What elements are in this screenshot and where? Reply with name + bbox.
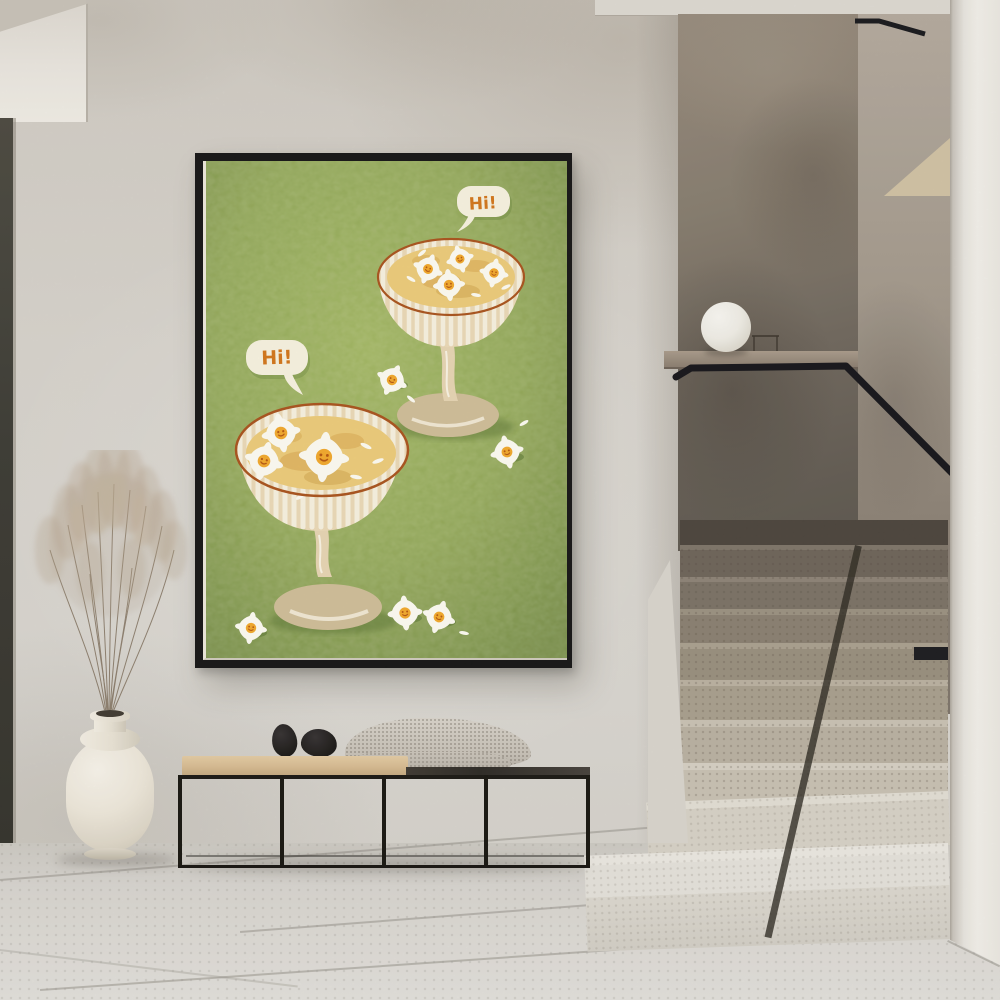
- foreground-wall-column: [950, 0, 1000, 965]
- bench: [178, 716, 592, 868]
- upper-handrail: [855, 21, 925, 34]
- bench-frame-bottom-rail: [178, 865, 590, 868]
- bench-leg: [382, 775, 386, 868]
- handrail-svg: [640, 0, 960, 700]
- pampas-grass: [20, 450, 220, 720]
- poster-frame: Hi! Hi!: [195, 153, 572, 668]
- bubble-text-right: Hi!: [468, 193, 497, 214]
- vase-mouth: [96, 710, 124, 717]
- ceramic-vase: [66, 738, 154, 852]
- decor-pebble: [300, 727, 339, 759]
- bench-leg: [178, 775, 182, 868]
- bench-leg: [484, 775, 488, 868]
- poster-canvas: Hi! Hi!: [203, 161, 567, 660]
- bench-leg: [586, 775, 590, 868]
- vase-foot: [84, 848, 136, 860]
- interior-scene: Hi! Hi!: [0, 0, 1000, 1000]
- poster-texture: [206, 161, 567, 658]
- bench-cushion: [182, 756, 408, 776]
- bubble-text-left: Hi!: [261, 346, 293, 369]
- poster-artwork: Hi! Hi!: [206, 161, 567, 658]
- door-frame-strip: [0, 118, 13, 845]
- decor-pebble: [270, 722, 299, 758]
- handrail: [676, 366, 952, 473]
- bench-leg: [280, 775, 284, 868]
- handrail-bracket: [914, 647, 948, 660]
- door-frame-edge: [13, 118, 16, 845]
